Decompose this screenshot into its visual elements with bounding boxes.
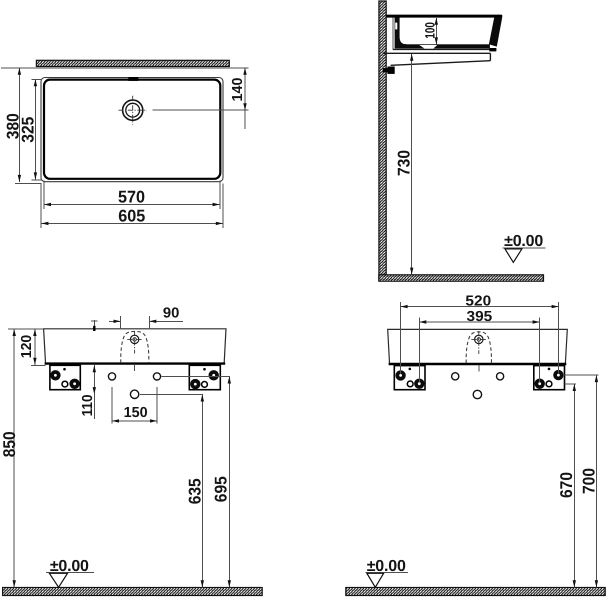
svg-text:100: 100: [422, 22, 437, 39]
svg-text:±0.00: ±0.00: [504, 233, 543, 250]
svg-text:850: 850: [0, 431, 19, 457]
svg-text:110: 110: [80, 394, 96, 416]
svg-text:520: 520: [465, 293, 491, 309]
svg-text:605: 605: [118, 206, 145, 225]
svg-text:635: 635: [186, 478, 205, 504]
svg-text:120: 120: [19, 335, 35, 359]
svg-text:395: 395: [467, 309, 493, 325]
svg-text:570: 570: [118, 188, 145, 207]
svg-text:325: 325: [19, 117, 38, 143]
svg-text:150: 150: [124, 405, 148, 421]
svg-text:140: 140: [230, 78, 246, 102]
svg-text:730: 730: [394, 150, 413, 176]
svg-text:90: 90: [163, 306, 180, 322]
svg-text:700: 700: [580, 468, 599, 494]
svg-text:695: 695: [212, 476, 231, 502]
svg-text:670: 670: [557, 472, 576, 498]
